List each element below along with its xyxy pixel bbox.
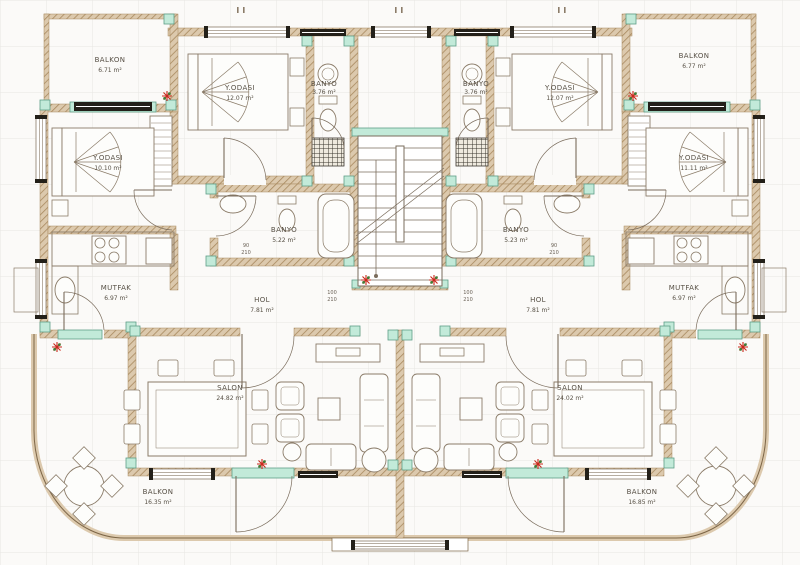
column-marker [440, 326, 450, 336]
room-name: MUTFAK [101, 284, 132, 292]
column-marker [584, 256, 594, 266]
room-area: 6.97 m² [672, 295, 696, 302]
room-area: 6.77 m² [682, 63, 706, 70]
room-name: MUTFAK [669, 284, 700, 292]
wall-segment [44, 14, 49, 109]
room-area: 24.02 m² [556, 395, 584, 402]
column-marker [626, 14, 636, 24]
window [586, 469, 650, 479]
door-dim-height: 210 [241, 250, 251, 256]
dining-table [148, 382, 246, 456]
column-marker [750, 322, 760, 332]
room-area: 7.81 m² [526, 307, 550, 314]
window-cap [592, 26, 596, 38]
armchair [276, 414, 304, 442]
floor-plan: BALKON 6.71 m² Y.ODASI 12.07 m² Y.ODASI … [0, 0, 800, 565]
wall-segment [48, 226, 176, 234]
window [150, 469, 214, 479]
wall-segment [136, 328, 240, 336]
room-name: BANYO [271, 226, 297, 234]
window-cap [647, 468, 651, 480]
room-area: 5.22 m² [272, 237, 296, 244]
room-area: 6.97 m² [104, 295, 128, 302]
round-table [414, 448, 438, 472]
door-dim-height: 210 [463, 297, 473, 303]
sink [554, 195, 580, 213]
column-marker [232, 468, 294, 478]
floor-plan-canvas: BALKON 6.71 m² Y.ODASI 12.07 m² Y.ODASI … [0, 0, 800, 565]
column-marker [446, 176, 456, 186]
armchair [496, 414, 524, 442]
column-marker [302, 176, 312, 186]
window-cap [753, 315, 765, 319]
column-marker [344, 36, 354, 46]
bed-headboard [602, 54, 612, 130]
wall-segment [210, 184, 358, 192]
room-area: 3.76 m² [312, 89, 336, 96]
room-name: BALKON [143, 488, 174, 496]
window [36, 116, 46, 182]
toilet-tank [319, 96, 337, 104]
wall-segment [442, 258, 590, 266]
dining-chair [252, 390, 268, 410]
plant-decor-icon [628, 91, 638, 101]
dining-chair [532, 424, 548, 444]
wall-segment [350, 36, 358, 186]
window-cap [211, 468, 215, 480]
dimension-tick [395, 7, 397, 13]
door-dim-width: 100 [327, 290, 337, 296]
window-cap [585, 468, 589, 480]
column-marker [584, 184, 594, 194]
room-area: 12.07 m² [546, 95, 574, 102]
column-marker [126, 458, 136, 468]
room-name: BANYO [463, 80, 489, 88]
sofa-three-seat [360, 374, 388, 452]
sink [55, 277, 75, 303]
stove [92, 236, 126, 264]
column-marker [446, 36, 456, 46]
room-area: 12.07 m² [226, 95, 254, 102]
window-cap [35, 315, 47, 319]
window [352, 541, 448, 549]
room-name: BALKON [679, 52, 710, 60]
column-marker [40, 100, 50, 110]
coffee-table [460, 398, 482, 420]
plant-decor-icon [257, 459, 267, 469]
column-marker [130, 326, 140, 336]
room-name: Y.ODASI [678, 154, 709, 162]
door-dim-width: 90 [243, 243, 249, 249]
bed-headboard [188, 54, 198, 130]
nightstand [52, 200, 68, 216]
round-table [499, 443, 517, 461]
window-cap [35, 259, 47, 263]
window-cap [445, 540, 449, 550]
wall-segment [751, 14, 756, 109]
stair-rail [396, 146, 404, 242]
window-cap [427, 26, 431, 38]
fridge [146, 238, 172, 264]
nightstand [732, 200, 748, 216]
wall-segment [624, 226, 752, 234]
nightstand [290, 58, 304, 76]
window-cap [510, 26, 514, 38]
dining-chair [252, 424, 268, 444]
door-dim-width: 90 [551, 243, 557, 249]
armchair [276, 382, 304, 410]
wall-segment [170, 14, 178, 112]
terrace-table [696, 466, 736, 506]
dining-chair [124, 390, 140, 410]
plant-decor-icon [52, 342, 62, 352]
door-gap [534, 175, 576, 185]
wall-segment [44, 14, 176, 19]
round-table [362, 448, 386, 472]
fridge [628, 238, 654, 264]
column-marker [402, 460, 412, 470]
column-marker [350, 326, 360, 336]
dining-chair [124, 424, 140, 444]
window-cap [35, 179, 47, 183]
tv [336, 348, 360, 356]
room-area: 24.82 m² [216, 395, 244, 402]
bed-headboard [738, 128, 748, 196]
room-area: 11.11 m² [680, 165, 708, 172]
dimension-tick [243, 7, 245, 13]
wall-segment [210, 258, 358, 266]
dimension-tick [401, 7, 403, 13]
room-area: 10.10 m² [94, 165, 122, 172]
sink [220, 195, 246, 213]
column-marker [624, 100, 634, 110]
room-name: BALKON [627, 488, 658, 496]
window [205, 27, 289, 37]
room-name: Y.ODASI [224, 84, 255, 92]
window [754, 116, 764, 182]
room-name: SALON [217, 384, 243, 392]
dining-chair [214, 360, 234, 376]
column-marker [58, 330, 102, 339]
room-name: Y.ODASI [92, 154, 123, 162]
room-name: HOL [254, 296, 270, 304]
room-area: 5.23 m² [504, 237, 528, 244]
column-marker [402, 330, 412, 340]
room-name: BANYO [503, 226, 529, 234]
bed-headboard [52, 128, 62, 196]
column-marker [206, 184, 216, 194]
plant-decor-icon [162, 91, 172, 101]
column-marker [164, 14, 174, 24]
door-gap [224, 175, 266, 185]
round-table [283, 443, 301, 461]
dining-chair [158, 360, 178, 376]
door-dim-width: 100 [463, 290, 473, 296]
room-area: 16.85 m² [628, 499, 656, 506]
bathtub [318, 194, 354, 258]
column-marker [664, 458, 674, 468]
window-cap [351, 540, 355, 550]
column-marker [488, 36, 498, 46]
armchair [496, 382, 524, 410]
window-cap [286, 26, 290, 38]
window-cap [371, 26, 375, 38]
room-name: SALON [557, 384, 583, 392]
wall-segment [624, 14, 756, 19]
column-marker [302, 36, 312, 46]
room-area: 16.35 m² [144, 499, 172, 506]
stair-start-dot [374, 274, 378, 278]
window-cap [35, 115, 47, 119]
toilet-tank [278, 196, 296, 204]
plant-decor-icon [533, 459, 543, 469]
dimension-tick [564, 7, 566, 13]
toilet-tank [463, 96, 481, 104]
door-dim-height: 210 [549, 250, 559, 256]
wall-segment [560, 328, 664, 336]
room-name: BALKON [95, 56, 126, 64]
nightstand [290, 108, 304, 126]
plant-decor-icon [738, 342, 748, 352]
room-name: BANYO [311, 80, 337, 88]
sink [725, 277, 745, 303]
shaft-grille [312, 138, 344, 166]
coffee-table [318, 398, 340, 420]
wall-segment [442, 184, 590, 192]
dimension-tick [558, 7, 560, 13]
nightstand [496, 108, 510, 126]
sofa-three-seat [412, 374, 440, 452]
tv [440, 348, 464, 356]
column-marker [206, 256, 216, 266]
stove [674, 236, 708, 264]
column-marker [506, 468, 568, 478]
terrace-table [64, 466, 104, 506]
column-marker [166, 100, 176, 110]
shaft-grille [456, 138, 488, 166]
column-marker [750, 100, 760, 110]
window-cap [149, 468, 153, 480]
column-marker [660, 326, 670, 336]
toilet-tank [504, 196, 522, 204]
wall-segment [396, 330, 404, 538]
window-cap [753, 259, 765, 263]
room-area: 7.81 m² [250, 307, 274, 314]
dining-chair [566, 360, 586, 376]
column-marker [352, 128, 448, 136]
window [36, 260, 46, 318]
wall-segment [622, 14, 630, 112]
window-cap [753, 179, 765, 183]
room-area: 3.76 m² [464, 89, 488, 96]
column-marker [488, 176, 498, 186]
plant-decor-icon [361, 275, 371, 285]
dining-chair [660, 424, 676, 444]
column-marker [344, 176, 354, 186]
window [372, 27, 430, 37]
plant-decor-icon [429, 275, 439, 285]
column-marker [388, 330, 398, 340]
dining-chair [622, 360, 642, 376]
column-marker [388, 460, 398, 470]
window [511, 27, 595, 37]
room-area: 6.71 m² [98, 67, 122, 74]
dining-chair [532, 390, 548, 410]
dining-chair [660, 390, 676, 410]
window [754, 260, 764, 318]
door-dim-height: 210 [327, 297, 337, 303]
dining-table [554, 382, 652, 456]
nightstand [496, 58, 510, 76]
column-marker [698, 330, 742, 339]
dimension-tick [237, 7, 239, 13]
window-cap [204, 26, 208, 38]
column-marker [40, 322, 50, 332]
window-cap [753, 115, 765, 119]
bathtub [446, 194, 482, 258]
wall-segment [442, 36, 450, 186]
room-name: Y.ODASI [544, 84, 575, 92]
room-name: HOL [530, 296, 546, 304]
